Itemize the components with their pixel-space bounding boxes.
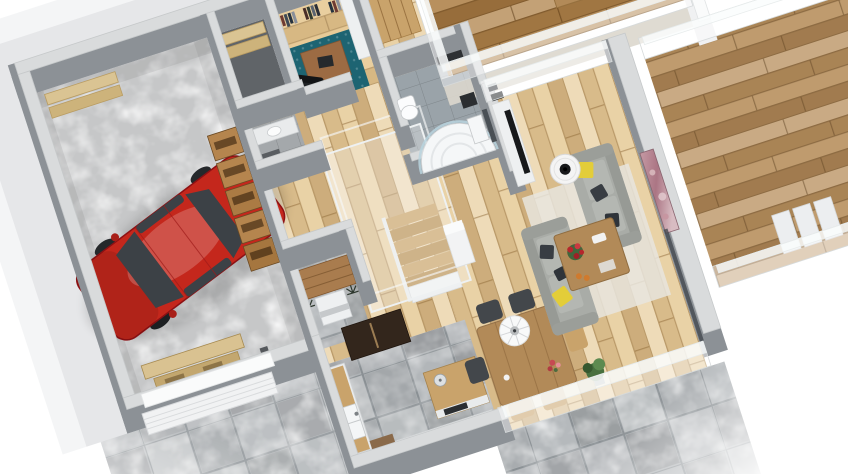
floorplan-3d-render[interactable] bbox=[0, 0, 848, 474]
render-canvas[interactable] bbox=[0, 0, 848, 474]
